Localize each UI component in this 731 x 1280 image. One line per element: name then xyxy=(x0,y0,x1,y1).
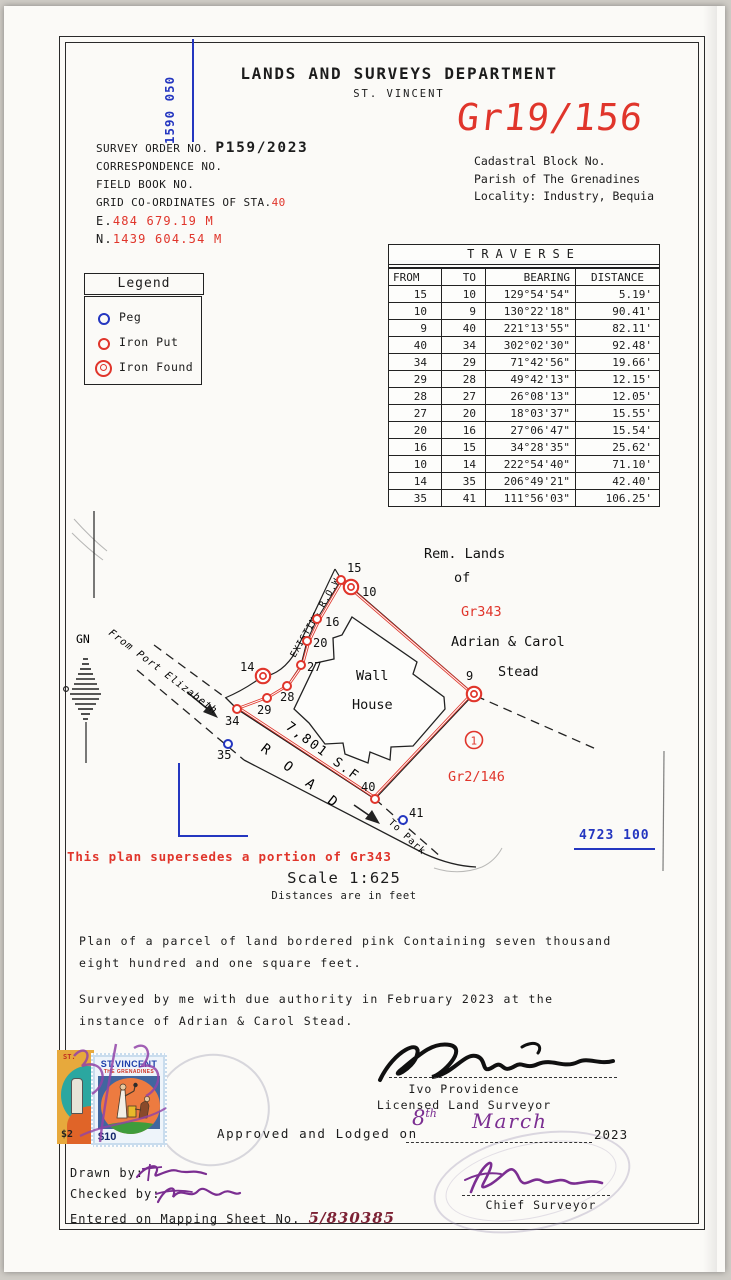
cell-distance: 15.55' xyxy=(575,405,659,421)
northing-label: N. xyxy=(96,232,113,246)
scanned-survey-plan: { "header": { "grid_ref_top": "1590 050"… xyxy=(0,0,731,1280)
station-number: 10 xyxy=(362,585,376,599)
traverse-row: 14 35 206°49'21" 42.40' xyxy=(389,472,659,489)
page-title: LANDS AND SURVEYS DEPARTMENT xyxy=(194,64,604,83)
cell-bearing: 222°54'40" xyxy=(485,456,575,472)
cell-to: 40 xyxy=(441,320,485,336)
cadastral-parish: Parish of The Grenadines xyxy=(474,171,654,189)
cell-to: 28 xyxy=(441,371,485,387)
signature-rule xyxy=(389,1077,617,1078)
cell-from: 9 xyxy=(389,320,441,336)
cell-distance: 82.11' xyxy=(575,320,659,336)
station-number: 34 xyxy=(225,714,239,728)
iron-found-marker xyxy=(467,687,481,701)
survey-order-value: P159/2023 xyxy=(215,140,308,156)
traverse-row: 28 27 26°08'13" 12.05' xyxy=(389,387,659,404)
cell-from: 10 xyxy=(389,303,441,319)
ink-stroke xyxy=(74,1051,103,1094)
cell-distance: 19.66' xyxy=(575,354,659,370)
cell-bearing: 130°22'18" xyxy=(485,303,575,319)
checked-by-signature xyxy=(152,1182,244,1208)
cell-distance: 25.62' xyxy=(575,439,659,455)
from-port-elizabeth-label: From Port Elizabeth xyxy=(106,628,219,717)
north-symbol-dot xyxy=(64,687,69,692)
survey-order-line: SURVEY ORDER NO. P159/2023 xyxy=(96,139,308,158)
cell-bearing: 221°13'55" xyxy=(485,320,575,336)
cell-bearing: 34°28'35" xyxy=(485,439,575,455)
station-number: 20 xyxy=(313,636,327,650)
traverse-header-row: FROM TO BEARING DISTANCE xyxy=(389,268,659,285)
checked-by-label: Checked by: xyxy=(70,1187,160,1201)
traverse-row: 34 29 71°42'56" 19.66' xyxy=(389,353,659,370)
approved-date-rule xyxy=(406,1142,592,1143)
correspondence-line: CORRESPONDENCE NO. xyxy=(96,158,308,176)
cell-to: 9 xyxy=(441,303,485,319)
cell-bearing: 49°42'13" xyxy=(485,371,575,387)
paper-sheet: 1590 050 LANDS AND SURVEYS DEPARTMENT ST… xyxy=(4,6,725,1272)
grid-north-label: GN xyxy=(76,632,90,646)
signature-stroke xyxy=(380,1044,613,1080)
iron-put-marker xyxy=(233,705,241,713)
approved-day-suffix: th xyxy=(425,1107,437,1120)
cell-distance: 71.10' xyxy=(575,456,659,472)
ink-stroke xyxy=(80,1108,166,1136)
survey-plan-map: GN Wall House xyxy=(44,496,704,886)
legend-item-label: Peg xyxy=(119,310,141,324)
legend-box: Peg Iron Put Iron Found xyxy=(84,296,202,385)
traverse-table: TRAVERSE FROM TO BEARING DISTANCE 15 10 … xyxy=(388,244,660,507)
traverse-row: 10 9 130°22'18" 90.41' xyxy=(389,302,659,319)
chief-surveyor-rule xyxy=(462,1195,610,1196)
legend-item: Iron Put xyxy=(85,329,201,354)
col-from: FROM xyxy=(389,269,441,285)
legend-item: Iron Found xyxy=(85,354,201,379)
station-number: 14 xyxy=(240,660,254,674)
station-number: 35 xyxy=(217,748,231,762)
traverse-title: TRAVERSE xyxy=(389,245,659,265)
iron-found-marker xyxy=(344,580,358,594)
cadastral-block: Cadastral Block No. Parish of The Grenad… xyxy=(474,153,654,206)
traverse-row: 40 34 302°02'30" 92.48' xyxy=(389,336,659,353)
cell-from: 14 xyxy=(389,473,441,489)
cell-from: 16 xyxy=(389,439,441,455)
col-to: TO xyxy=(441,269,485,285)
iron-put-marker xyxy=(283,682,291,690)
gr343-label: Gr343 xyxy=(461,604,502,620)
north-arrow-icon xyxy=(70,659,101,719)
cell-from: 10 xyxy=(389,456,441,472)
gr2-146-label: Gr2/146 xyxy=(448,769,505,785)
survey-info-block: SURVEY ORDER NO. P159/2023 CORRESPONDENC… xyxy=(96,139,308,248)
cell-bearing: 129°54'54" xyxy=(485,286,575,302)
cell-from: 20 xyxy=(389,422,441,438)
mapping-sheet-line: Entered on Mapping Sheet No. 5/830385 xyxy=(70,1209,395,1227)
cell-from: 29 xyxy=(389,371,441,387)
iron-put-marker xyxy=(371,795,379,803)
station-number: 28 xyxy=(280,690,294,704)
crease-mark xyxy=(72,533,103,560)
approved-lodged-label: Approved and Lodged on xyxy=(217,1126,418,1141)
traverse-row: 15 10 129°54'54" 5.19' xyxy=(389,285,659,302)
cell-to: 35 xyxy=(441,473,485,489)
cadastral-locality: Locality: Industry, Bequia xyxy=(474,188,654,206)
cell-distance: 5.19' xyxy=(575,286,659,302)
station-number: 41 xyxy=(409,806,423,820)
grid-reference-right: 4723 100 xyxy=(579,828,650,843)
iron-put-marker xyxy=(303,637,311,645)
iron-put-marker xyxy=(297,661,305,669)
grid-corner-mark xyxy=(179,763,248,836)
traverse-row: 20 16 27°06'47" 15.54' xyxy=(389,421,659,438)
house-label-2: House xyxy=(352,697,393,713)
grid-station-value: 40 xyxy=(272,196,286,209)
station-number: 27 xyxy=(307,660,321,674)
grid-coordinates-line: GRID CO-ORDINATES OF STA.40 xyxy=(96,194,308,212)
cell-distance: 15.54' xyxy=(575,422,659,438)
cell-bearing: 27°06'47" xyxy=(485,422,575,438)
cell-to: 20 xyxy=(441,405,485,421)
cell-from: 40 xyxy=(389,337,441,353)
signature-stroke xyxy=(471,1163,602,1192)
approved-day-handwritten: 8th xyxy=(412,1106,437,1130)
easting-value: 484 679.19 M xyxy=(113,214,214,228)
station-number: 16 xyxy=(325,615,339,629)
grid-coordinates-label: GRID CO-ORDINATES OF STA. xyxy=(96,196,272,209)
rem-lands-of: of xyxy=(454,570,470,586)
cell-from: 34 xyxy=(389,354,441,370)
cadastral-block-no: Cadastral Block No. xyxy=(474,153,654,171)
circled-1-number: 1 xyxy=(471,735,478,748)
cell-distance: 92.48' xyxy=(575,337,659,353)
rem-lands-label: Rem. Lands xyxy=(424,546,505,562)
easting-line: E.484 679.19 M xyxy=(96,212,308,230)
description-line-4: instance of Adrian & Carol Stead. xyxy=(79,1014,354,1028)
cell-distance: 42.40' xyxy=(575,473,659,489)
iron-put-marker xyxy=(263,694,271,702)
col-bearing: BEARING xyxy=(485,269,575,285)
station-number: 15 xyxy=(347,561,361,575)
legend-title: Legend xyxy=(84,273,204,295)
station-number: 29 xyxy=(257,703,271,717)
traverse-row: 29 28 49°42'13" 12.15' xyxy=(389,370,659,387)
cell-to: 27 xyxy=(441,388,485,404)
peg-marker xyxy=(224,740,232,748)
traverse-row: 9 40 221°13'55" 82.11' xyxy=(389,319,659,336)
supersede-note: This plan supersedes a portion of Gr343 xyxy=(67,849,392,864)
cell-from: 28 xyxy=(389,388,441,404)
mapping-sheet-value: 5/830385 xyxy=(309,1209,396,1227)
boundary-dashed-from-9 xyxy=(476,696,596,749)
surveyor-name: Ivo Providence xyxy=(364,1082,564,1096)
traverse-rows: 15 10 129°54'54" 5.19' 10 9 130°22'18" 9… xyxy=(389,285,659,506)
cell-bearing: 302°02'30" xyxy=(485,337,575,353)
cell-to: 16 xyxy=(441,422,485,438)
description-line-1: Plan of a parcel of land bordered pink C… xyxy=(79,934,612,948)
cell-from: 27 xyxy=(389,405,441,421)
cell-to: 29 xyxy=(441,354,485,370)
iron-put-marker xyxy=(337,576,345,584)
description-line-3: Surveyed by me with due authority in Feb… xyxy=(79,992,553,1006)
iron-put-marker xyxy=(313,615,321,623)
chief-surveyor-signature xyxy=(459,1152,614,1198)
cell-from: 15 xyxy=(389,286,441,302)
traverse-row: 10 14 222°54'40" 71.10' xyxy=(389,455,659,472)
station-number: 40 xyxy=(361,780,375,794)
owner-name-1: Adrian & Carol xyxy=(451,634,565,650)
signature-stroke xyxy=(465,1173,501,1180)
plan-number: Gr19/156 xyxy=(455,96,646,139)
cell-distance: 90.41' xyxy=(575,303,659,319)
northing-line: N.1439 604.54 M xyxy=(96,230,308,248)
cell-bearing: 18°03'37" xyxy=(485,405,575,421)
cell-to: 34 xyxy=(441,337,485,353)
legend-item: Peg xyxy=(85,304,201,329)
cell-to: 14 xyxy=(441,456,485,472)
col-distance: DISTANCE xyxy=(575,269,659,285)
description-line-2: eight hundred and one square feet. xyxy=(79,956,362,970)
approved-month-handwritten: March xyxy=(472,1109,548,1133)
crease-line xyxy=(663,751,664,871)
legend-item-label: Iron Found xyxy=(119,360,193,374)
owner-name-2: Stead xyxy=(498,664,539,680)
legend-marker-icon xyxy=(94,334,110,350)
cell-bearing: 26°08'13" xyxy=(485,388,575,404)
traverse-row: 27 20 18°03'37" 15.55' xyxy=(389,404,659,421)
field-book-line: FIELD BOOK NO. xyxy=(96,176,308,194)
scale-label: Scale 1:625 xyxy=(144,869,544,887)
survey-order-label: SURVEY ORDER NO. xyxy=(96,142,208,155)
cell-to: 10 xyxy=(441,286,485,302)
cell-distance: 12.15' xyxy=(575,371,659,387)
approved-year: 2023 xyxy=(594,1127,628,1142)
cell-bearing: 71°42'56" xyxy=(485,354,575,370)
station-number: 9 xyxy=(466,669,473,683)
northing-value: 1439 604.54 M xyxy=(113,232,223,246)
ink-stroke xyxy=(134,1046,158,1096)
road-arrow-shaft xyxy=(354,805,370,816)
scale-units-label: Distances are in feet xyxy=(144,890,544,902)
iron-found-marker xyxy=(256,669,270,683)
approved-day: 8 xyxy=(412,1106,425,1130)
legend-marker-icon xyxy=(94,359,110,375)
crease-mark xyxy=(74,519,107,551)
chief-surveyor-title: Chief Surveyor xyxy=(466,1198,616,1212)
stamp-cancellation-ink xyxy=(52,1038,182,1156)
easting-label: E. xyxy=(96,214,113,228)
traverse-row: 16 15 34°28'35" 25.62' xyxy=(389,438,659,455)
cell-bearing: 206°49'21" xyxy=(485,473,575,489)
road-arrow-head xyxy=(365,810,380,824)
legend-item-label: Iron Put xyxy=(119,335,178,349)
cell-to: 15 xyxy=(441,439,485,455)
signature-stroke xyxy=(522,1043,540,1053)
mapping-sheet-label: Entered on Mapping Sheet No. xyxy=(70,1212,300,1226)
legend-marker-icon xyxy=(94,309,110,325)
house-label-1: Wall xyxy=(356,668,389,684)
peg-marker xyxy=(399,816,407,824)
cell-distance: 12.05' xyxy=(575,388,659,404)
grid-reference-top: 1590 050 xyxy=(162,48,177,144)
